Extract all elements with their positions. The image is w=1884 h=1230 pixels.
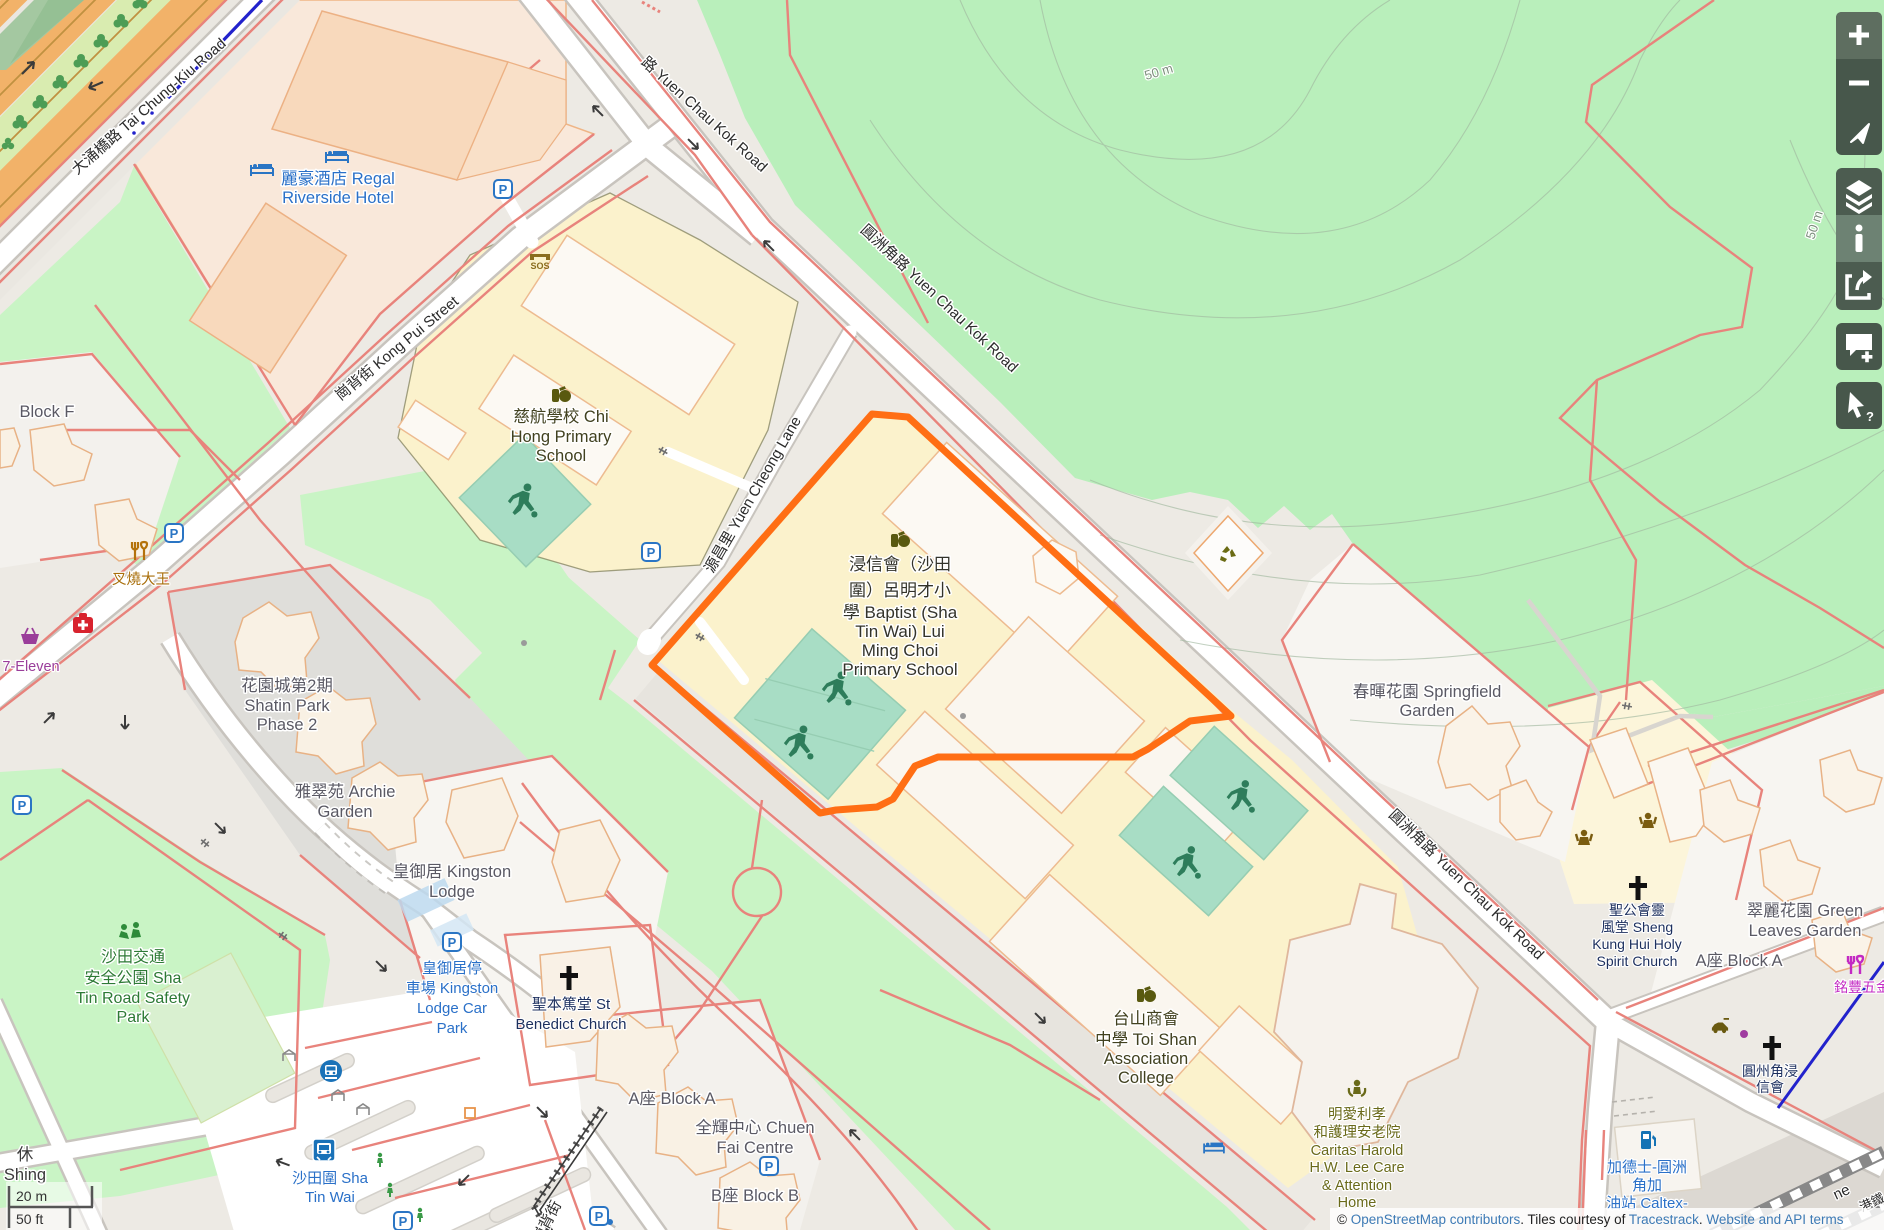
svg-text:慈航學校 Chi: 慈航學校 Chi — [513, 407, 608, 426]
svg-text:P: P — [647, 545, 656, 560]
svg-text:Association: Association — [1104, 1050, 1188, 1068]
svg-text:安全公園 Sha: 安全公園 Sha — [85, 969, 182, 987]
svg-text:SOS: SOS — [530, 261, 549, 271]
svg-text:Caritas Harold: Caritas Harold — [1311, 1143, 1404, 1159]
svg-text:Shing: Shing — [4, 1166, 46, 1184]
svg-text:浸信會（沙田: 浸信會（沙田 — [849, 555, 951, 574]
svg-text:皇御居 Kingston: 皇御居 Kingston — [393, 862, 511, 881]
svg-text:銘豐五金: 銘豐五金 — [1834, 979, 1884, 995]
svg-text:Leaves Garden: Leaves Garden — [1749, 922, 1862, 940]
svg-text:聖本篤堂 St: 聖本篤堂 St — [532, 995, 611, 1013]
svg-text:Garden: Garden — [317, 803, 372, 821]
svg-text:皇御居停: 皇御居停 — [422, 960, 482, 977]
svg-text:全輝中心 Chuen: 全輝中心 Chuen — [695, 1118, 814, 1137]
svg-text:P: P — [18, 798, 27, 813]
svg-text:P: P — [448, 935, 457, 950]
svg-text:Shatin Park: Shatin Park — [244, 697, 330, 715]
svg-text:50 ft: 50 ft — [16, 1211, 43, 1227]
svg-text:台山商會: 台山商會 — [1113, 1009, 1180, 1028]
svg-text:H.W. Lee Care: H.W. Lee Care — [1309, 1160, 1404, 1176]
svg-text:Benedict Church: Benedict Church — [516, 1016, 627, 1033]
svg-text:Park: Park — [437, 1020, 468, 1037]
svg-text:風堂 Sheng: 風堂 Sheng — [1601, 919, 1673, 935]
svg-text:沙田交通: 沙田交通 — [101, 948, 165, 966]
svg-text:P: P — [499, 182, 508, 197]
svg-text:P: P — [765, 1159, 774, 1174]
svg-text:圍）呂明才小: 圍）呂明才小 — [849, 581, 951, 600]
svg-text:麗豪酒店 Regal: 麗豪酒店 Regal — [281, 168, 395, 188]
svg-text:叉燒大王: 叉燒大王 — [112, 571, 170, 588]
svg-text:Tin Road Safety: Tin Road Safety — [76, 990, 190, 1007]
svg-text:© OpenStreetMap contributors.: © OpenStreetMap contributors. Tiles cour… — [1337, 1212, 1844, 1227]
svg-text:Phase 2: Phase 2 — [257, 716, 318, 734]
svg-text:圓州角浸: 圓州角浸 — [1742, 1063, 1798, 1079]
svg-text:信會: 信會 — [1756, 1079, 1784, 1095]
svg-text:Tin Wai) Lui: Tin Wai) Lui — [855, 622, 944, 641]
svg-text:學 Baptist (Sha: 學 Baptist (Sha — [843, 603, 958, 622]
svg-text:20 m: 20 m — [16, 1188, 47, 1204]
svg-text:翠麗花園 Green: 翠麗花園 Green — [1747, 901, 1863, 920]
svg-text:Spirit Church: Spirit Church — [1597, 953, 1678, 969]
svg-text:Hong Primary: Hong Primary — [511, 428, 613, 446]
svg-text:P: P — [170, 526, 179, 541]
svg-text:B座 Block B: B座 Block B — [711, 1186, 799, 1205]
svg-text:Ming Choi: Ming Choi — [862, 641, 939, 660]
svg-text:Fai Centre: Fai Centre — [716, 1139, 793, 1157]
svg-text:7-Eleven: 7-Eleven — [2, 659, 59, 675]
svg-text:Tin Wai: Tin Wai — [305, 1189, 355, 1206]
svg-text:P: P — [595, 1209, 604, 1224]
svg-text:明愛利孝: 明愛利孝 — [1328, 1106, 1386, 1123]
svg-text:車場 Kingston: 車場 Kingston — [406, 980, 499, 997]
svg-text:A座 Block A: A座 Block A — [1695, 951, 1782, 970]
svg-text:?: ? — [1866, 409, 1874, 424]
svg-text:聖公會靈: 聖公會靈 — [1609, 902, 1665, 918]
svg-text:Kung Hui Holy: Kung Hui Holy — [1592, 936, 1682, 952]
svg-text:加德士-圓洲: 加德士-圓洲 — [1607, 1158, 1687, 1176]
svg-text:School: School — [536, 447, 586, 465]
svg-text:Primary School: Primary School — [842, 660, 957, 679]
svg-text:花園城第2期: 花園城第2期 — [241, 676, 333, 695]
svg-text:Garden: Garden — [1399, 702, 1454, 720]
svg-text:A座 Block A: A座 Block A — [628, 1089, 715, 1108]
svg-text:Block F: Block F — [19, 403, 74, 421]
svg-text:& Attention: & Attention — [1322, 1178, 1392, 1194]
svg-text:Riverside Hotel: Riverside Hotel — [282, 189, 394, 207]
svg-text:P: P — [399, 1214, 408, 1229]
svg-text:角加: 角加 — [1632, 1177, 1662, 1194]
svg-text:雅翠苑 Archie: 雅翠苑 Archie — [295, 782, 396, 801]
svg-text:Park: Park — [117, 1009, 151, 1026]
svg-text:Lodge: Lodge — [429, 883, 475, 901]
svg-text:中學 Toi Shan: 中學 Toi Shan — [1095, 1030, 1197, 1049]
svg-text:和護理安老院: 和護理安老院 — [1314, 1124, 1401, 1141]
svg-text:沙田圍 Sha: 沙田圍 Sha — [292, 1170, 369, 1187]
svg-text:College: College — [1118, 1069, 1174, 1087]
svg-text:春暉花園 Springfield: 春暉花園 Springfield — [1353, 682, 1502, 701]
svg-text:休: 休 — [17, 1145, 34, 1164]
svg-text:Lodge Car: Lodge Car — [417, 1000, 487, 1017]
